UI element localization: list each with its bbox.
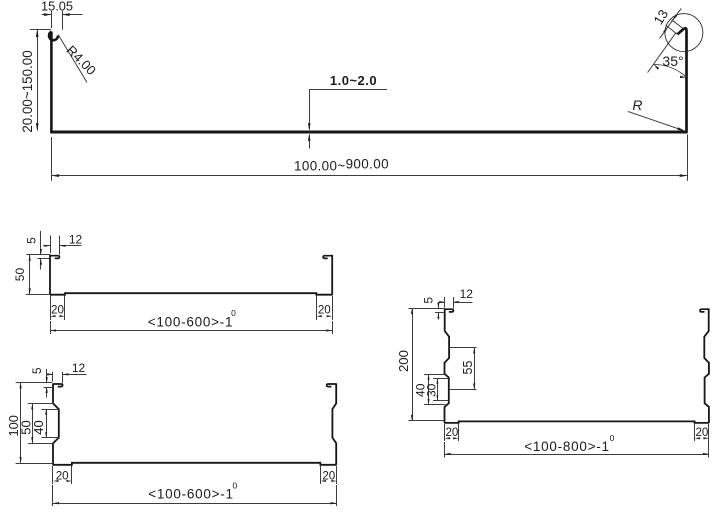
svg-text:5: 5 bbox=[30, 367, 44, 374]
svg-text:0: 0 bbox=[610, 433, 615, 443]
svg-text:5: 5 bbox=[25, 237, 39, 244]
svg-text:20.00~150.00: 20.00~150.00 bbox=[20, 50, 35, 132]
svg-text:200: 200 bbox=[396, 350, 411, 372]
svg-text:20: 20 bbox=[322, 470, 335, 483]
svg-text:<100-800>-1: <100-800>-1 bbox=[524, 439, 610, 454]
svg-text:20: 20 bbox=[56, 470, 69, 483]
svg-text:0: 0 bbox=[231, 308, 236, 318]
svg-text:R: R bbox=[632, 97, 642, 113]
svg-text:55: 55 bbox=[461, 361, 475, 375]
svg-text:40: 40 bbox=[31, 420, 46, 434]
svg-text:5: 5 bbox=[422, 297, 436, 304]
svg-text:15.05: 15.05 bbox=[41, 0, 73, 14]
svg-text:12: 12 bbox=[69, 232, 83, 246]
svg-text:20: 20 bbox=[51, 304, 64, 317]
svg-text:0: 0 bbox=[233, 481, 238, 491]
svg-text:100.00~900.00: 100.00~900.00 bbox=[294, 157, 389, 174]
svg-text:20: 20 bbox=[695, 426, 708, 439]
svg-text:12: 12 bbox=[460, 287, 474, 301]
svg-text:30: 30 bbox=[425, 383, 439, 397]
svg-text:<100-600>-1: <100-600>-1 bbox=[148, 314, 234, 329]
svg-text:20: 20 bbox=[318, 304, 331, 317]
svg-text:20: 20 bbox=[445, 426, 458, 439]
svg-text:35°: 35° bbox=[662, 53, 683, 69]
svg-text:<100-600>-1: <100-600>-1 bbox=[148, 486, 234, 501]
svg-text:1.0~2.0: 1.0~2.0 bbox=[330, 73, 377, 88]
svg-text:50: 50 bbox=[13, 268, 27, 282]
svg-text:12: 12 bbox=[72, 361, 86, 375]
